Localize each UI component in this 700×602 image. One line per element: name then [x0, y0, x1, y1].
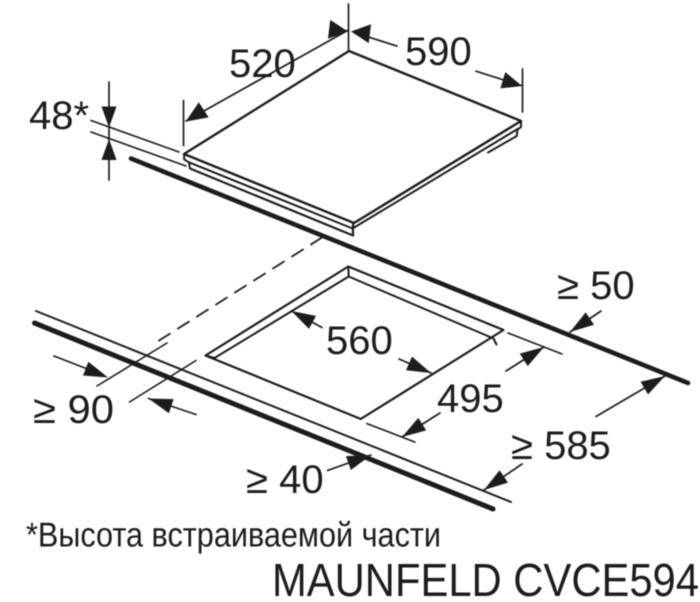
svg-text:590: 590 — [405, 30, 472, 74]
svg-text:495: 495 — [437, 377, 504, 421]
svg-text:*Высота встраиваемой части: *Высота встраиваемой части — [26, 517, 441, 555]
svg-text:MAUNFELD CVCE594: MAUNFELD CVCE594 — [272, 554, 699, 602]
svg-text:≥ 50: ≥ 50 — [557, 264, 635, 308]
svg-text:48*: 48* — [29, 94, 89, 138]
svg-text:520: 520 — [229, 42, 296, 86]
svg-text:560: 560 — [326, 319, 393, 363]
svg-text:≥ 90: ≥ 90 — [33, 388, 114, 432]
svg-text:≥ 585: ≥ 585 — [511, 424, 611, 468]
svg-text:≥ 40: ≥ 40 — [246, 458, 324, 502]
